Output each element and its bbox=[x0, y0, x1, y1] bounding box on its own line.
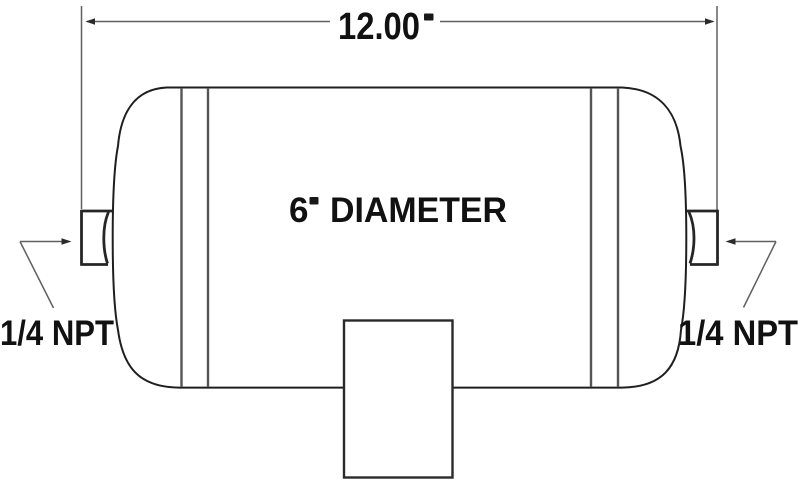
svg-text:6: 6 bbox=[289, 191, 308, 230]
svg-text:12.00: 12.00 bbox=[338, 6, 420, 48]
svg-text:1/4 NPT: 1/4 NPT bbox=[0, 314, 114, 353]
svg-text:1/4 NPT: 1/4 NPT bbox=[678, 314, 798, 353]
svg-text:DIAMETER: DIAMETER bbox=[330, 191, 507, 230]
